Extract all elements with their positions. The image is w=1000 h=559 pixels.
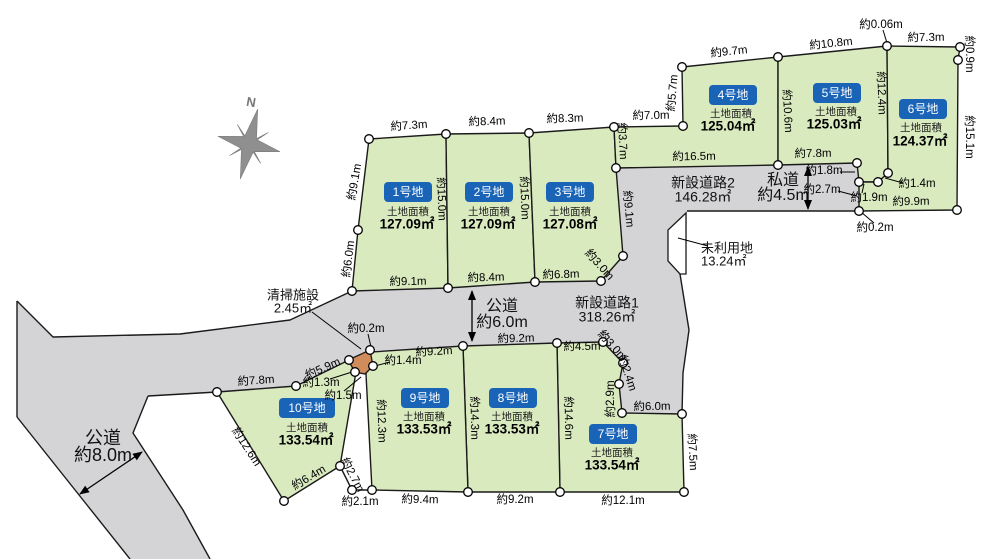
vertex-marker	[345, 356, 354, 365]
vertex-marker	[884, 169, 893, 178]
lot-8-badge-label: 8号地	[498, 391, 529, 405]
dimension-label: 約9.7m	[710, 42, 748, 60]
dimension-label: 約1.9m	[850, 190, 887, 204]
dimension-label: 約7.8m	[794, 146, 831, 161]
dimension-label: 約2.9m	[603, 380, 617, 417]
vertex-marker	[855, 178, 864, 187]
vertex-marker	[618, 409, 627, 418]
vertex-marker	[556, 488, 565, 497]
unused-land-label-line2: 13.24㎡	[701, 253, 747, 268]
dimension-label: 約7.5m	[685, 433, 701, 471]
dimension-label: 約9.9m	[892, 194, 929, 209]
dimension-label: 約9.4m	[401, 492, 438, 507]
plot-map-svg: N1号地土地面積127.09㎡2号地土地面積127.09㎡3号地土地面積127.…	[0, 0, 1000, 559]
dimension-label: 約6.0m	[633, 399, 670, 414]
vertex-marker	[444, 284, 453, 293]
dimension-label: 約5.7m	[663, 74, 680, 112]
vertex-marker	[442, 130, 451, 139]
dimension-label: 約1.5m	[324, 388, 361, 402]
compass-star	[209, 101, 289, 186]
dimension-label: 約9.1m	[344, 162, 364, 201]
vertex-marker	[680, 488, 689, 497]
dimension-label: 約16.5m	[672, 149, 716, 164]
vertex-marker	[366, 346, 375, 355]
leader-line	[883, 30, 887, 43]
vertex-marker	[464, 488, 473, 497]
dimension-label: 約12.3m	[374, 399, 390, 443]
dimension-label: 約2.7m	[803, 182, 840, 196]
dimension-label: 約9.2m	[497, 330, 535, 345]
lot-5-badge-label: 5号地	[822, 86, 853, 100]
dimension-label: 約15.0m	[517, 176, 533, 220]
lot-10-area-value: 133.54㎡	[279, 432, 334, 448]
lot-10-badge-label: 10号地	[288, 401, 325, 415]
dimension-label: 約4.5m	[563, 339, 600, 354]
vertex-marker	[525, 129, 534, 138]
vertex-marker	[351, 368, 360, 377]
dimension-label: 約1.3m	[302, 375, 339, 389]
lot-7-area-value: 133.54㎡	[585, 457, 640, 473]
vertex-marker	[354, 226, 363, 235]
lot-9-area-value: 133.53㎡	[397, 421, 452, 437]
private-road-label-line2: 約4.5m	[757, 186, 809, 204]
dimension-label: 約0.9m	[963, 35, 977, 72]
vertex-marker	[855, 207, 864, 216]
land-plot-diagram: N1号地土地面積127.09㎡2号地土地面積127.09㎡3号地土地面積127.…	[0, 0, 1000, 559]
lot-3-area-value: 127.08㎡	[543, 216, 598, 232]
vertex-marker	[883, 42, 892, 51]
lot-3-parcel	[529, 127, 623, 282]
dimension-label: 約8.4m	[467, 269, 505, 284]
dimension-label: 約6.8m	[542, 266, 580, 281]
compass-north-label: N	[245, 94, 257, 110]
vertex-marker	[954, 56, 963, 65]
vertex-marker	[774, 53, 783, 62]
lot-4-badge-label: 4号地	[718, 88, 749, 102]
vertex-marker	[280, 497, 289, 506]
dimension-label: 約7.0m	[632, 108, 669, 123]
vertex-marker	[531, 278, 540, 287]
dimension-label: 約12.4m	[874, 71, 890, 115]
lot-4-area-value: 125.04㎡	[701, 118, 756, 134]
dimension-label: 約14.3m	[468, 396, 483, 440]
new-road-2-label-line2: 146.28㎡	[675, 189, 732, 205]
vertex-marker	[874, 178, 883, 187]
dimension-label: 約7.3m	[390, 117, 428, 134]
dimension-label: 約1.8m	[805, 163, 842, 177]
lot-9-badge-label: 9号地	[410, 391, 441, 405]
vertex-marker	[213, 388, 222, 397]
dimension-label: 約1.4m	[898, 176, 935, 190]
dimension-label: 約0.2m	[856, 220, 893, 234]
compass-icon	[209, 101, 289, 186]
vertex-marker	[553, 339, 562, 348]
dimension-label: 約1.4m	[384, 353, 421, 367]
dimension-label: 約2.7m	[338, 455, 368, 494]
lot-5-area-value: 125.03㎡	[807, 116, 862, 132]
vertex-marker	[368, 486, 377, 495]
lot-3-badge-label: 3号地	[555, 185, 586, 199]
dimension-label: 約2.1m	[341, 494, 378, 508]
vertex-marker	[348, 287, 357, 296]
public-road-6m-label-line1: 公道	[486, 297, 518, 315]
vertex-marker	[678, 410, 687, 419]
dimension-label: 約12.1m	[601, 493, 644, 507]
public-road-6m-label-line2: 約6.0m	[476, 313, 528, 331]
lot-1-badge-label: 1号地	[393, 185, 424, 199]
dimension-label: 約8.4m	[468, 113, 506, 128]
dimension-label: 約15.1m	[963, 115, 977, 158]
dimension-label: 約8.3m	[546, 110, 584, 125]
dimension-label: 約9.2m	[496, 492, 533, 506]
vertex-marker	[774, 161, 783, 170]
dimension-label: 約15.0m	[434, 177, 450, 221]
vertex-marker	[369, 362, 378, 371]
lot-7-badge-label: 7号地	[598, 427, 629, 441]
vertex-marker	[679, 122, 688, 131]
lot-1-area-value: 127.09㎡	[380, 216, 435, 232]
vertex-marker	[619, 252, 628, 261]
vertex-marker	[953, 206, 962, 215]
new-road-1-label-line2: 318.26㎡	[579, 309, 636, 325]
dimension-label: 約0.2m	[347, 321, 384, 335]
lot-6-area-title: 土地面積	[900, 121, 942, 134]
lot-2-area-value: 127.09㎡	[461, 216, 516, 232]
vertex-marker	[678, 63, 687, 72]
dimension-label: 約14.6m	[562, 396, 577, 440]
vertex-marker	[612, 164, 621, 173]
dimension-label: 約7.3m	[907, 30, 944, 45]
cleaning-facility-label-line2: 2.45㎡	[274, 300, 312, 315]
lot-8-area-value: 133.53㎡	[485, 421, 540, 437]
vertex-marker	[853, 159, 862, 168]
vertex-marker	[459, 342, 468, 351]
dimension-label: 約0.06m	[859, 17, 902, 31]
lot-2-badge-label: 2号地	[474, 185, 505, 199]
lot-6-badge-label: 6号地	[908, 102, 939, 116]
dimension-label: 約9.1m	[389, 274, 426, 289]
lot-6-area-value: 124.37㎡	[893, 133, 948, 149]
vertex-marker	[365, 135, 374, 144]
public-road-8m-label-line2: 約8.0m	[74, 445, 132, 465]
vertex-marker	[292, 382, 301, 391]
